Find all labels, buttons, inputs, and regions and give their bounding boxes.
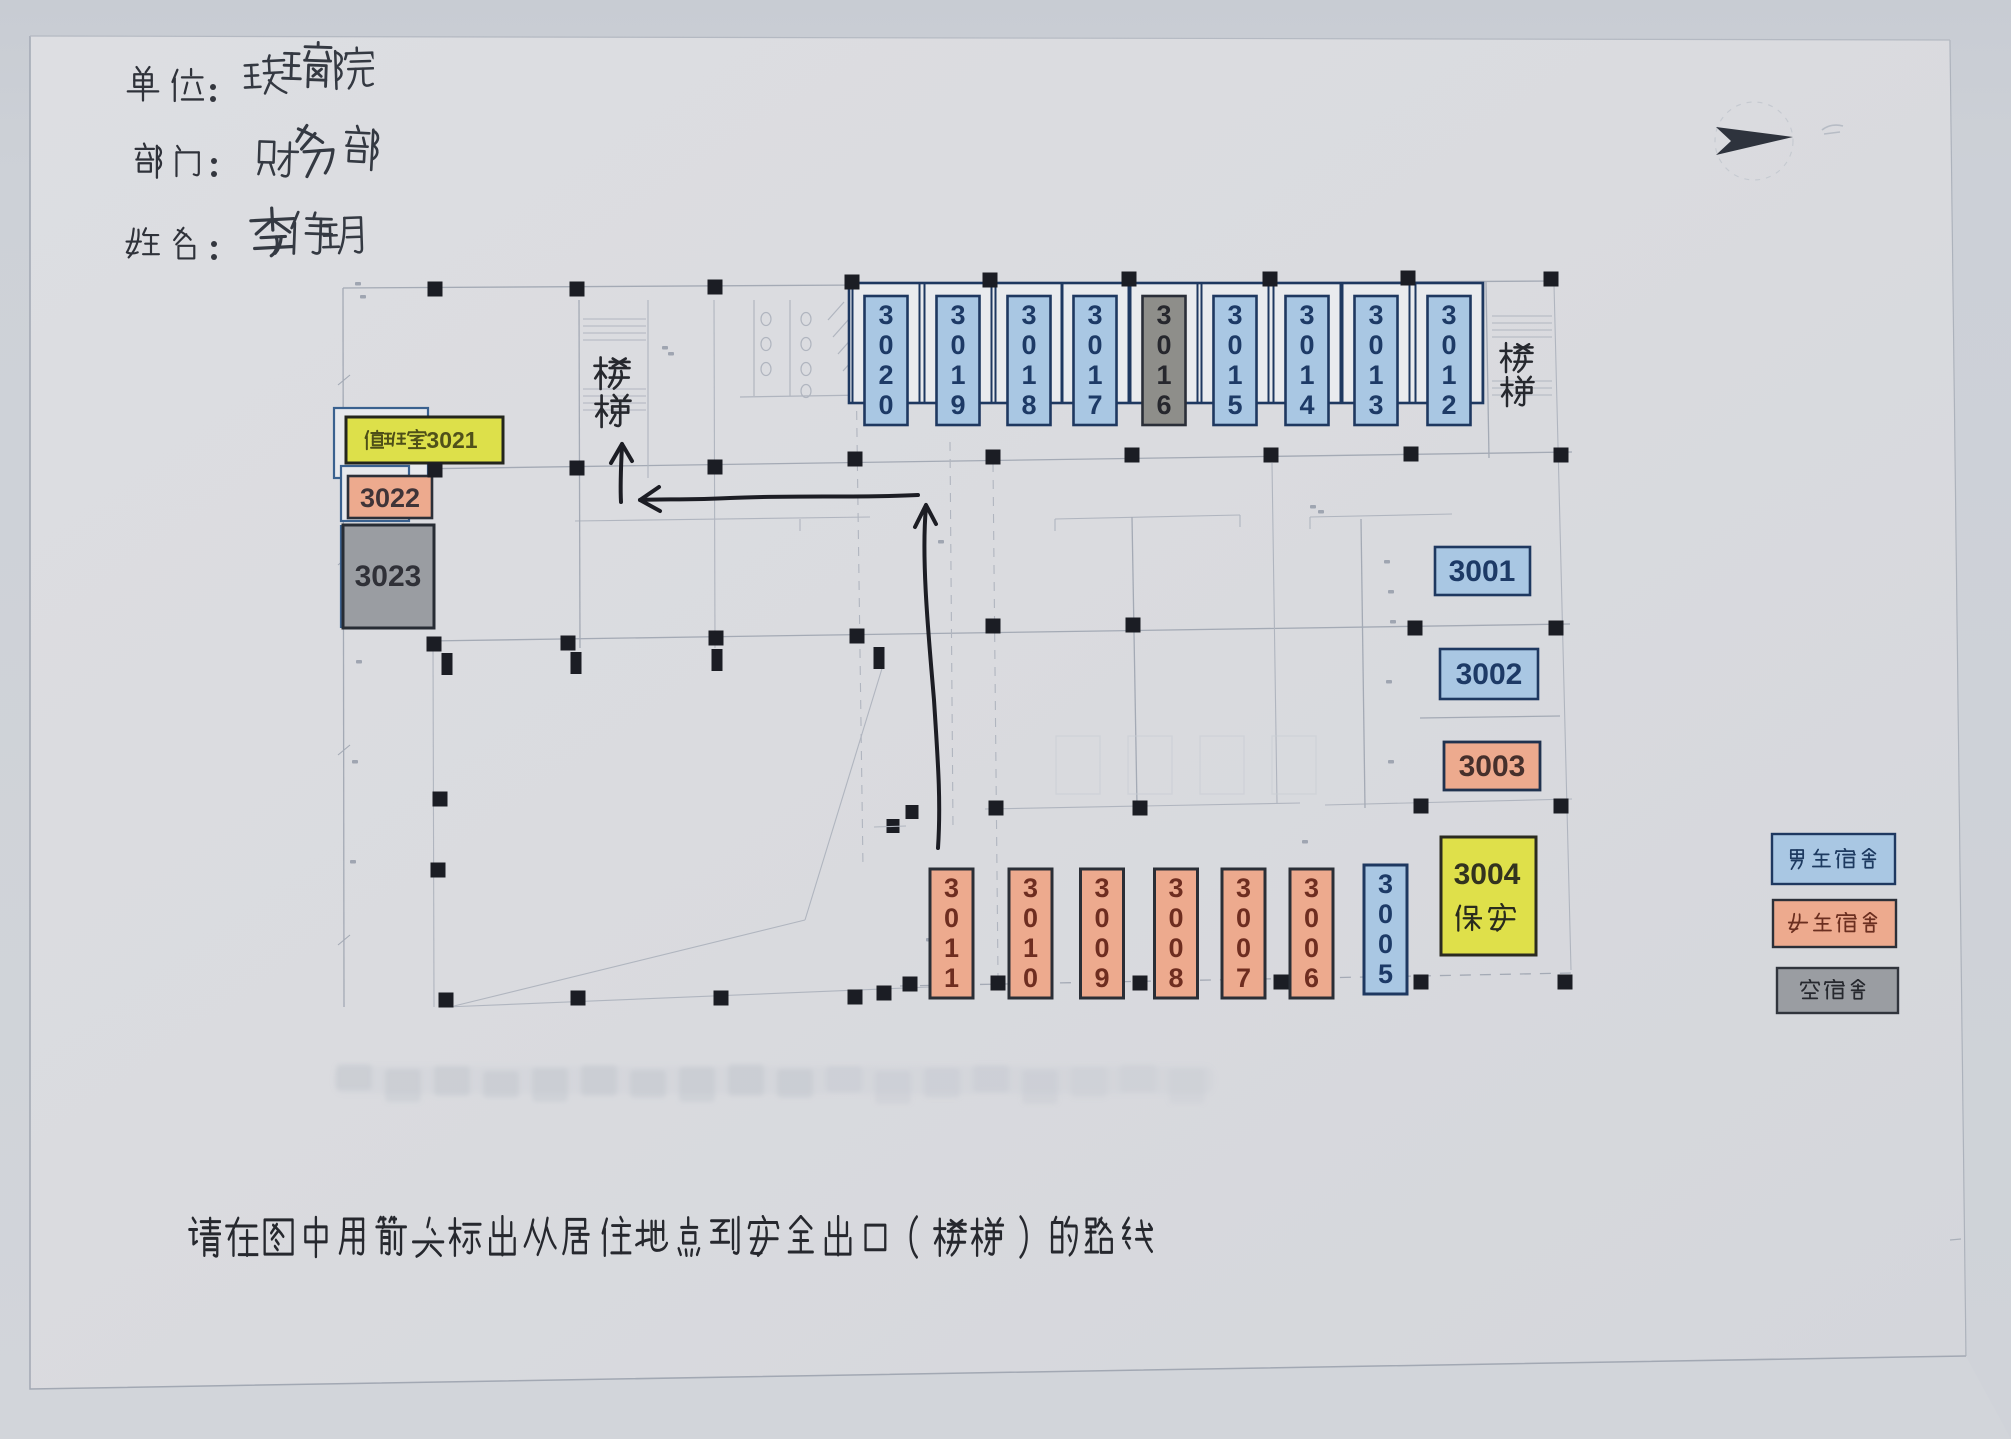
svg-text:3022: 3022 [360,483,420,513]
svg-text:3008: 3008 [1168,873,1183,993]
svg-text:3017: 3017 [1087,300,1102,420]
svg-text:3002: 3002 [1456,658,1523,691]
svg-text:3018: 3018 [1021,300,1036,420]
svg-text:3020: 3020 [878,300,893,420]
svg-text:3011: 3011 [944,873,959,993]
svg-text:3005: 3005 [1378,869,1393,989]
svg-text:3023: 3023 [355,560,422,593]
svg-text:3021: 3021 [426,427,477,453]
svg-text:3003: 3003 [1459,750,1526,783]
svg-text:3012: 3012 [1441,300,1456,420]
svg-text:3001: 3001 [1449,555,1516,588]
svg-text:3013: 3013 [1368,300,1383,420]
svg-text:3006: 3006 [1304,873,1319,993]
svg-text:3019: 3019 [950,300,965,420]
svg-text:3009: 3009 [1094,873,1109,993]
svg-text:3014: 3014 [1299,300,1314,420]
svg-text:3016: 3016 [1156,300,1171,420]
svg-text:3007: 3007 [1236,873,1251,993]
svg-text:3004: 3004 [1454,858,1521,891]
svg-text:3010: 3010 [1023,873,1038,993]
svg-text:3015: 3015 [1227,300,1242,420]
